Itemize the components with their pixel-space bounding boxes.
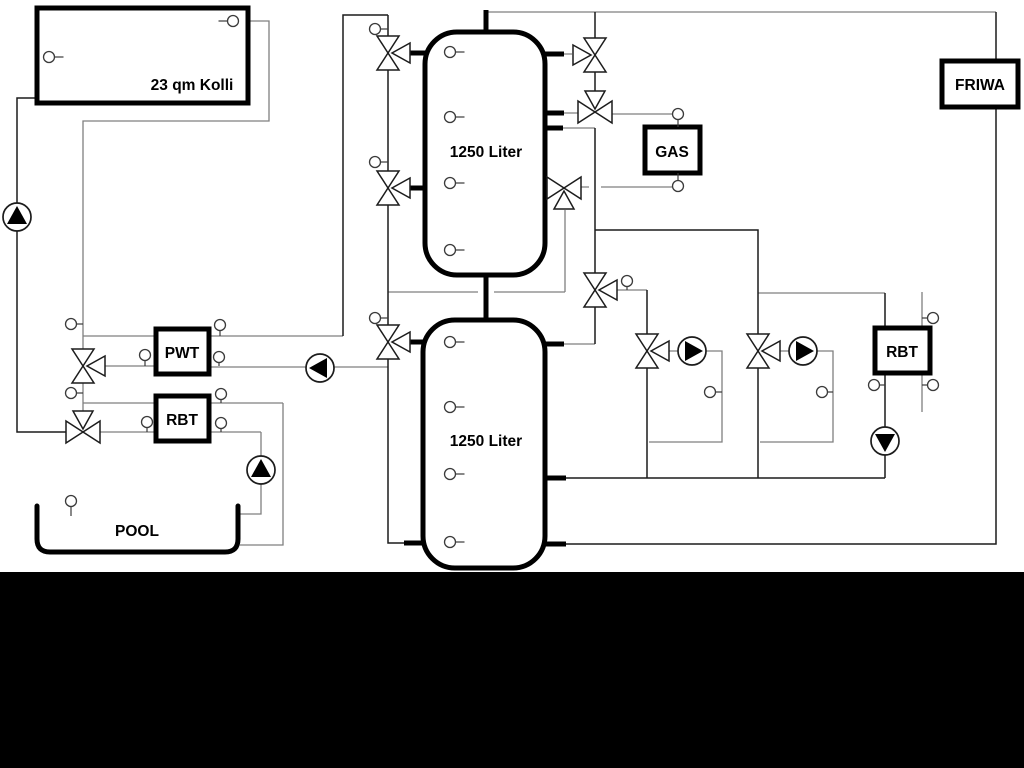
temperature-sensor-icon: [142, 417, 153, 428]
temperature-sensor-icon: [370, 24, 381, 35]
rbt-right-heat-exchanger-label: RBT: [886, 344, 918, 361]
letterbox-bar: [0, 572, 1024, 768]
temperature-sensor-icon: [66, 496, 77, 507]
temperature-sensor-icon: [66, 319, 77, 330]
temperature-sensor-icon: [817, 387, 828, 398]
solar-collector-label: 23 qm Kolli: [151, 77, 234, 94]
schematic-page: 23 qm Kolli 1250 Liter 1250 Liter GAS FR…: [0, 0, 1024, 768]
temperature-sensor-icon: [928, 313, 939, 324]
pool-label: POOL: [115, 523, 159, 540]
temperature-sensor-icon: [705, 387, 716, 398]
temperature-sensor-icon: [445, 337, 456, 348]
friwa-station-label: FRIWA: [955, 77, 1005, 94]
buffer-tank-bottom-label: 1250 Liter: [450, 433, 522, 450]
temperature-sensor-icon: [673, 109, 684, 120]
temperature-sensor-icon: [370, 313, 381, 324]
temperature-sensor-icon: [66, 388, 77, 399]
temperature-sensor-icon: [445, 47, 456, 58]
temperature-sensor-icon: [228, 16, 239, 27]
temperature-sensor-icon: [445, 402, 456, 413]
temperature-sensor-icon: [140, 350, 151, 361]
temperature-sensor-icon: [370, 157, 381, 168]
temperature-sensor-icon: [216, 389, 227, 400]
pwt-heat-exchanger-label: PWT: [165, 345, 200, 362]
temperature-sensor-icon: [44, 52, 55, 63]
temperature-sensor-icon: [445, 537, 456, 548]
hydraulic-schematic: 23 qm Kolli 1250 Liter 1250 Liter GAS FR…: [0, 0, 1024, 768]
temperature-sensor-icon: [928, 380, 939, 391]
buffer-tank-top-label: 1250 Liter: [450, 144, 522, 161]
temperature-sensor-icon: [216, 418, 227, 429]
temperature-sensor-icon: [445, 245, 456, 256]
temperature-sensor-icon: [622, 276, 633, 287]
rbt-left-heat-exchanger-label: RBT: [166, 412, 198, 429]
temperature-sensor-icon: [214, 352, 225, 363]
temperature-sensor-icon: [215, 320, 226, 331]
temperature-sensor-icon: [445, 469, 456, 480]
temperature-sensor-icon: [445, 112, 456, 123]
temperature-sensor-icon: [445, 178, 456, 189]
gas-boiler-label: GAS: [655, 144, 689, 161]
temperature-sensor-icon: [673, 181, 684, 192]
temperature-sensor-icon: [869, 380, 880, 391]
